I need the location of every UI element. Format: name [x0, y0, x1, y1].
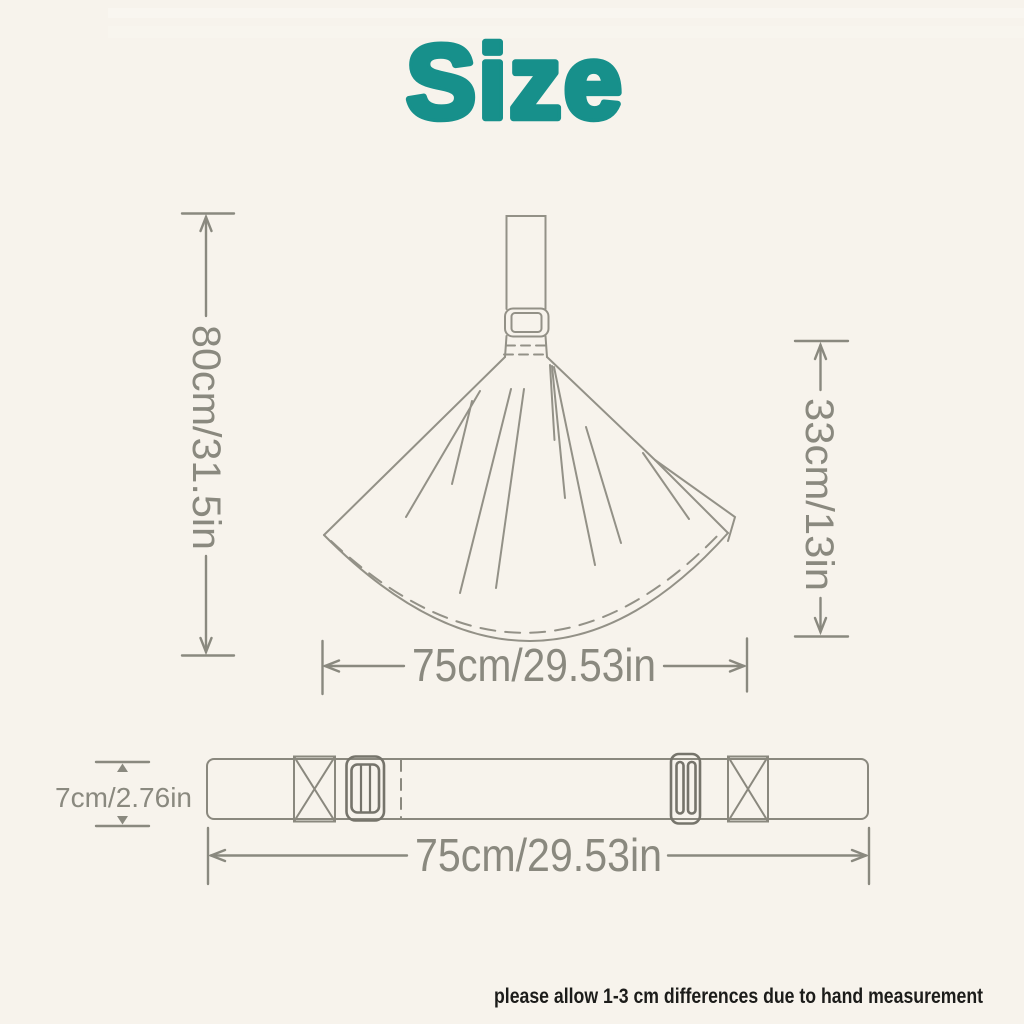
svg-text:Size: Size	[406, 24, 624, 141]
svg-text:75cm/29.53in: 75cm/29.53in	[412, 639, 656, 691]
svg-text:33cm/13in: 33cm/13in	[797, 398, 841, 591]
svg-text:75cm/29.53in: 75cm/29.53in	[415, 829, 662, 881]
svg-text:please allow 1-3 cm difference: please allow 1-3 cm differences due to h…	[494, 984, 983, 1008]
svg-text:80cm/31.5in: 80cm/31.5in	[184, 325, 228, 550]
svg-text:7cm/2.76in: 7cm/2.76in	[55, 782, 192, 813]
